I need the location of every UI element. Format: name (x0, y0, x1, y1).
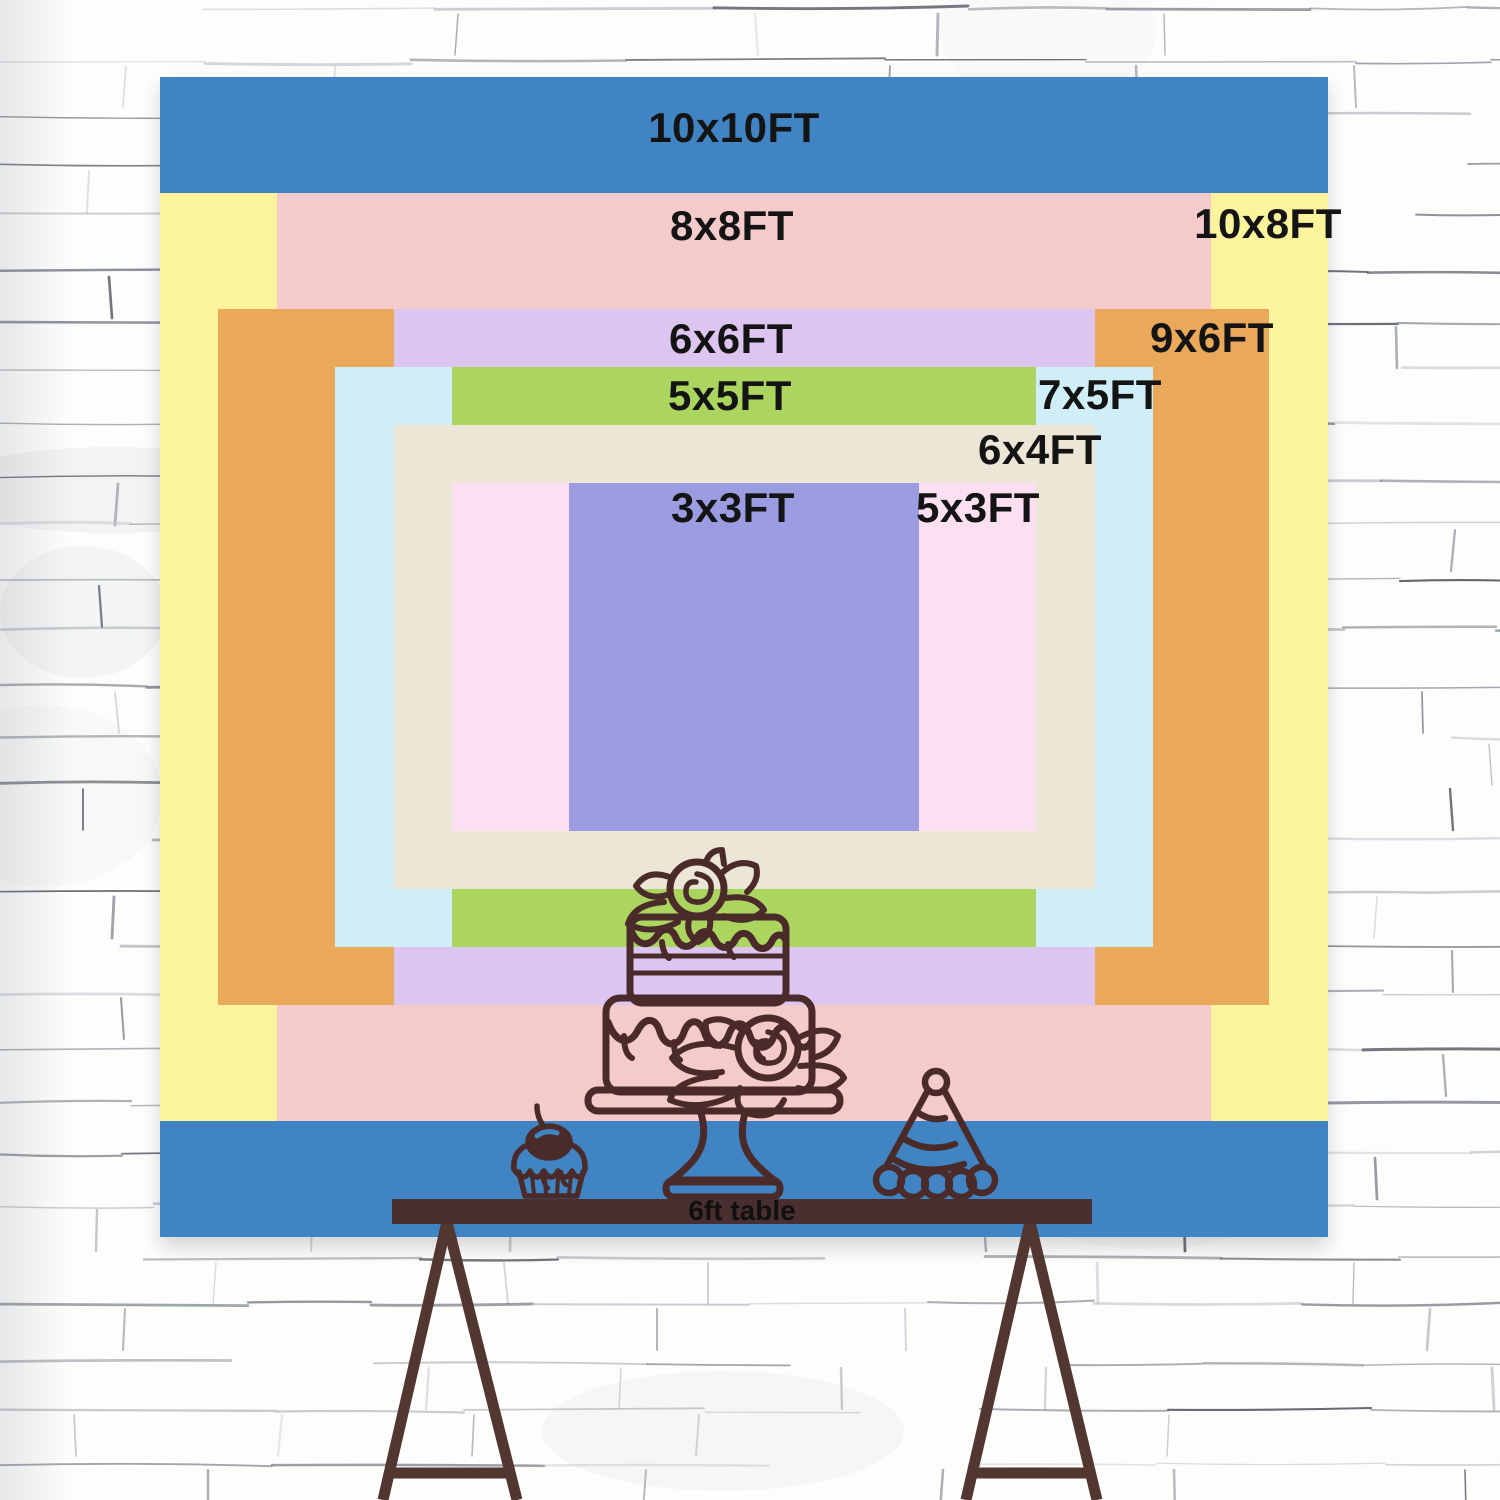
size-label-5x5ft: 5x5FT (668, 372, 792, 420)
size-label-10x10ft: 10x10FT (648, 104, 820, 152)
size-label-10x8ft: 10x8FT (1194, 200, 1342, 248)
table-label: 6ft table (688, 1195, 795, 1227)
size-label-7x5ft: 7x5FT (1038, 371, 1162, 419)
size-label-5x3ft: 5x3FT (916, 484, 1040, 532)
backdrop-size-chart: 10x10FT 8x8FT 10x8FT 6x6FT 9x6FT 5x5FT 7… (0, 0, 1500, 1500)
size-label-6x4ft: 6x4FT (978, 426, 1102, 474)
size-label-3x3ft: 3x3FT (671, 484, 795, 532)
size-labels: 10x10FT 8x8FT 10x8FT 6x6FT 9x6FT 5x5FT 7… (0, 0, 1500, 1500)
size-label-9x6ft: 9x6FT (1150, 314, 1274, 362)
size-label-8x8ft: 8x8FT (670, 202, 794, 250)
size-label-6x6ft: 6x6FT (669, 315, 793, 363)
